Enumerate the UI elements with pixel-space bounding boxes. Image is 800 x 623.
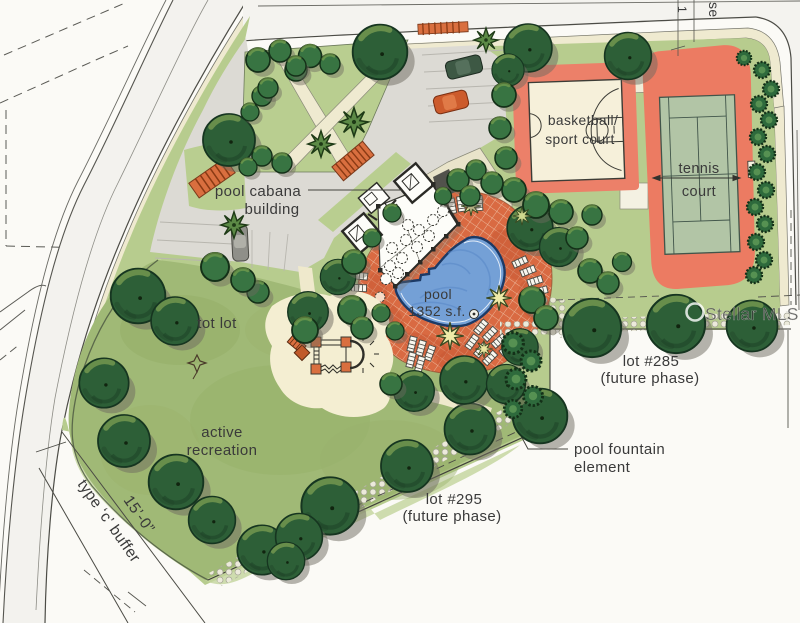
svg-text:sport court: sport court [545,132,615,147]
svg-text:Stellar MLS: Stellar MLS [705,304,799,324]
svg-text:lot #295: lot #295 [426,491,483,508]
svg-text:building: building [245,201,300,218]
svg-text:element: element [574,459,631,476]
svg-text:1: 1 [675,6,689,13]
svg-text:court: court [682,184,716,200]
svg-text:tennis: tennis [678,161,719,177]
svg-text:active: active [201,424,243,441]
svg-text:(future phase): (future phase) [403,508,502,525]
svg-text:pool cabana: pool cabana [215,183,301,200]
svg-text:recreation: recreation [187,442,258,459]
svg-text:basketball/: basketball/ [548,113,618,128]
svg-text:pool: pool [424,286,452,302]
svg-text:tot lot: tot lot [197,315,237,332]
svg-text:se: se [706,2,722,18]
svg-text:(future phase): (future phase) [601,370,700,387]
svg-text:lot #285: lot #285 [623,353,680,370]
svg-text:pool fountain: pool fountain [574,441,665,458]
svg-text:1352 s.f.: 1352 s.f. [408,303,465,319]
